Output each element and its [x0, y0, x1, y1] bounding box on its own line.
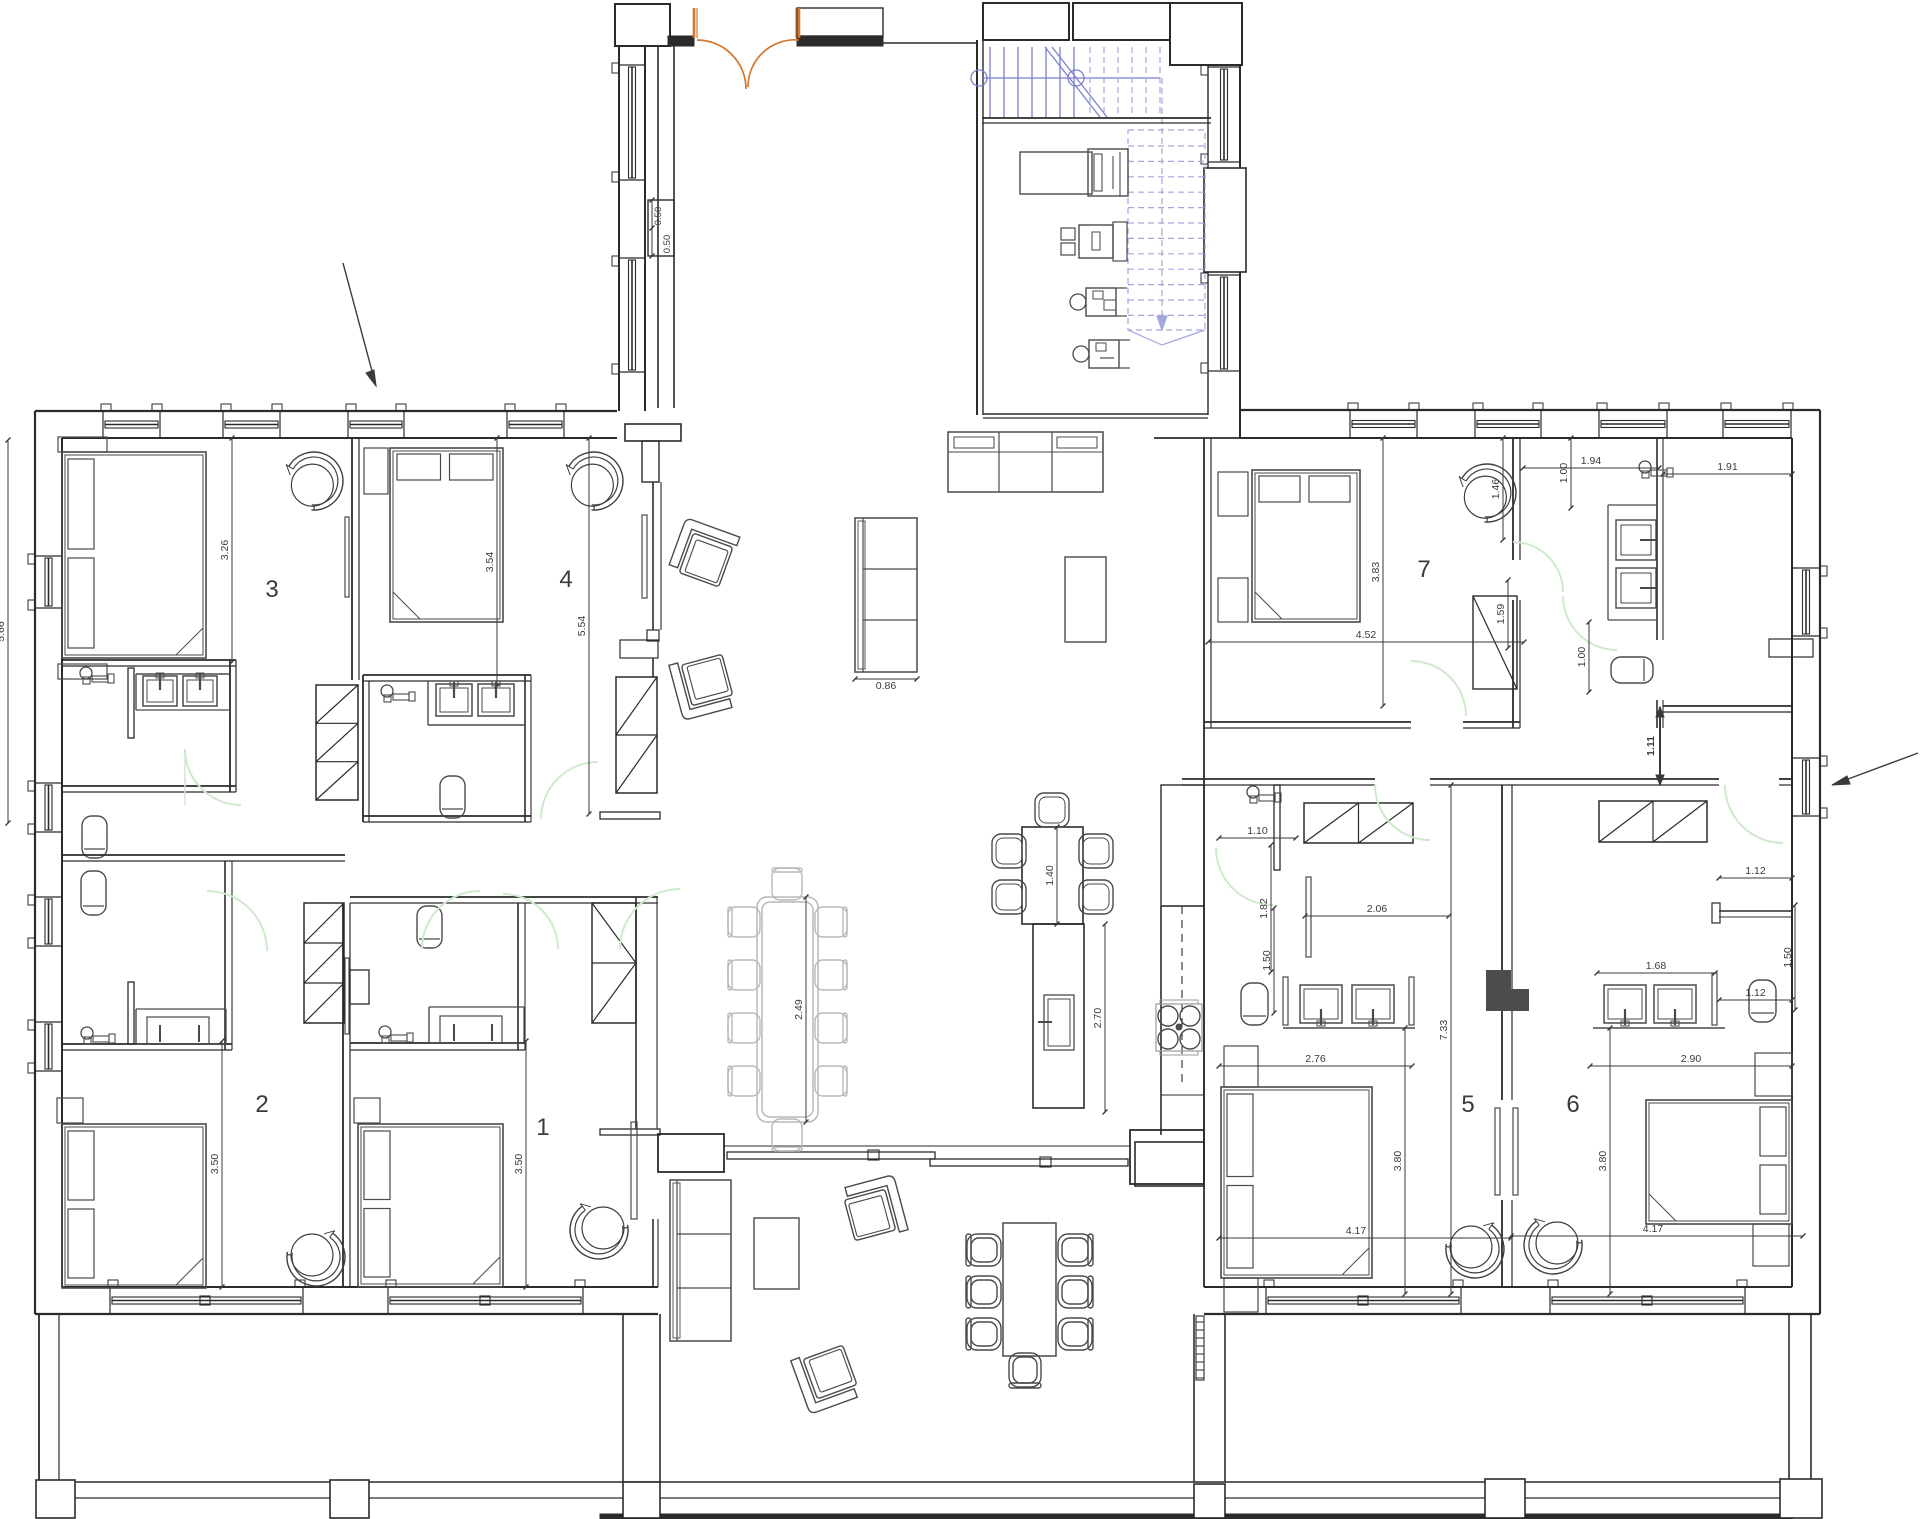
svg-text:2.90: 2.90 [1681, 1053, 1702, 1065]
svg-text:3.26: 3.26 [219, 540, 231, 561]
svg-text:4.17: 4.17 [1643, 1223, 1664, 1235]
svg-text:1.40: 1.40 [1044, 865, 1056, 886]
svg-text:2.76: 2.76 [1305, 1053, 1326, 1065]
svg-text:3: 3 [265, 576, 278, 603]
svg-text:0.86: 0.86 [876, 680, 897, 692]
svg-text:1.94: 1.94 [1581, 455, 1602, 467]
svg-text:1.10: 1.10 [1247, 825, 1268, 837]
svg-text:5: 5 [1461, 1091, 1474, 1118]
svg-text:1.50: 1.50 [1782, 947, 1794, 968]
svg-text:1.12: 1.12 [1745, 987, 1766, 999]
svg-text:1.50: 1.50 [1261, 950, 1273, 971]
svg-text:1.68: 1.68 [1646, 960, 1667, 972]
svg-text:1.11: 1.11 [1645, 736, 1657, 756]
svg-text:1.82: 1.82 [1258, 898, 1270, 919]
svg-text:2.06: 2.06 [1367, 903, 1388, 915]
svg-text:3.80: 3.80 [1392, 1151, 1404, 1172]
svg-text:5.54: 5.54 [576, 616, 588, 637]
svg-text:5.66: 5.66 [0, 621, 7, 642]
svg-text:2.49: 2.49 [793, 999, 805, 1020]
svg-text:7: 7 [1417, 556, 1430, 583]
svg-text:1.46: 1.46 [1490, 479, 1502, 500]
svg-text:1.00: 1.00 [1576, 647, 1588, 668]
svg-text:1.91: 1.91 [1717, 461, 1738, 473]
svg-text:3.50: 3.50 [513, 1154, 525, 1175]
svg-text:1.00: 1.00 [1558, 463, 1570, 484]
svg-text:2: 2 [255, 1091, 268, 1118]
svg-text:1.12: 1.12 [1745, 865, 1766, 877]
svg-text:1: 1 [536, 1114, 549, 1141]
svg-text:3.80: 3.80 [1597, 1151, 1609, 1172]
svg-text:0.50: 0.50 [653, 207, 664, 226]
svg-text:6: 6 [1566, 1091, 1579, 1118]
svg-text:3.83: 3.83 [1370, 562, 1382, 583]
svg-text:3.54: 3.54 [484, 552, 496, 573]
svg-text:3.50: 3.50 [209, 1154, 221, 1175]
svg-text:4: 4 [559, 566, 572, 593]
svg-text:7.33: 7.33 [1438, 1020, 1450, 1041]
svg-text:0.50: 0.50 [662, 235, 673, 254]
svg-text:4.52: 4.52 [1356, 629, 1377, 641]
svg-text:1.59: 1.59 [1495, 604, 1507, 625]
svg-text:2.70: 2.70 [1092, 1008, 1104, 1029]
svg-text:4.17: 4.17 [1346, 1225, 1367, 1237]
